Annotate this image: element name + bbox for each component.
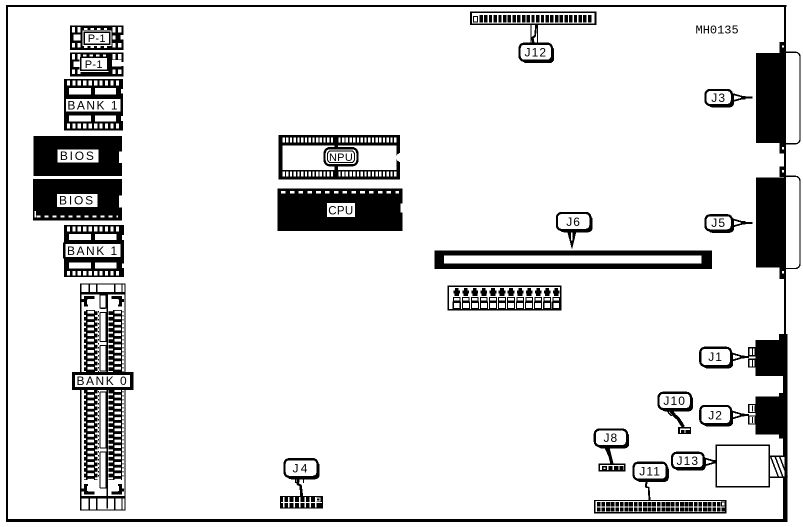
- svg-text:J5: J5: [711, 216, 726, 230]
- svg-text:J4: J4: [293, 461, 310, 475]
- svg-text:BANK 1: BANK 1: [67, 98, 119, 112]
- svg-text:J11: J11: [639, 464, 661, 478]
- svg-text:J13: J13: [677, 454, 700, 468]
- svg-text:MH0135: MH0135: [696, 24, 739, 38]
- svg-text:J12: J12: [524, 46, 547, 60]
- svg-text:BANK 1: BANK 1: [67, 244, 119, 258]
- svg-text:J10: J10: [663, 394, 686, 408]
- svg-text:J1: J1: [708, 350, 723, 364]
- svg-text:BANK 0: BANK 0: [77, 374, 129, 388]
- svg-text:J6: J6: [566, 215, 581, 229]
- svg-text:J8: J8: [603, 431, 618, 445]
- svg-text:NPU: NPU: [329, 152, 353, 164]
- svg-text:J2: J2: [708, 408, 723, 422]
- svg-text:J3: J3: [711, 91, 726, 105]
- svg-text:BIOS: BIOS: [59, 194, 95, 208]
- svg-text:CPU: CPU: [328, 205, 353, 217]
- svg-text:BIOS: BIOS: [60, 149, 96, 163]
- svg-text:P-1: P-1: [85, 59, 103, 71]
- svg-text:P-1: P-1: [88, 33, 106, 45]
